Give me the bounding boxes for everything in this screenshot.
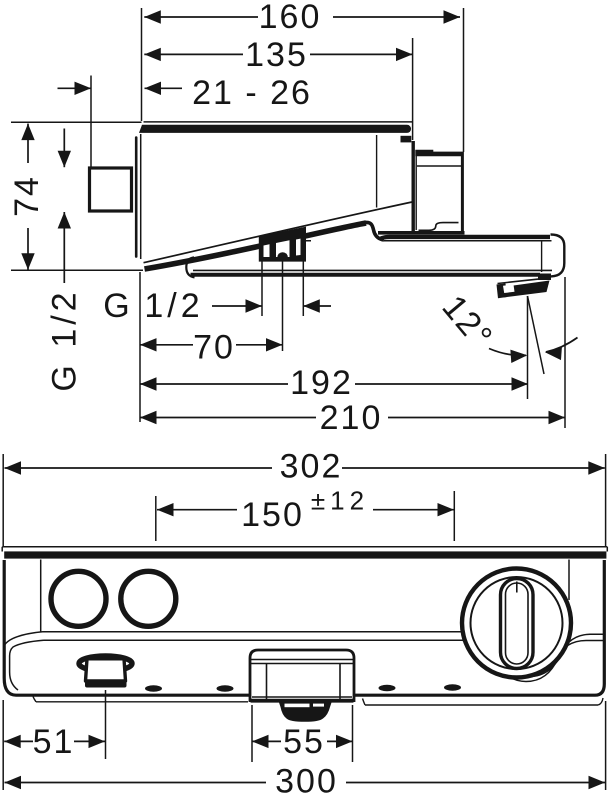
svg-text:±12: ±12 [311,485,369,515]
svg-text:70: 70 [193,329,235,367]
svg-text:G 1/2: G 1/2 [46,288,84,391]
svg-text:55: 55 [283,723,325,761]
svg-text:150: 150 [241,496,304,534]
svg-text:51: 51 [33,723,75,761]
svg-text:G: G [103,287,131,325]
svg-text:74: 74 [8,175,46,217]
svg-text:1/2: 1/2 [144,287,203,325]
svg-text:160: 160 [259,0,322,36]
svg-text:302: 302 [280,448,343,486]
svg-text:21 - 26: 21 - 26 [192,74,312,112]
svg-text:210: 210 [320,399,383,437]
svg-text:135: 135 [245,36,308,74]
svg-text:192: 192 [290,364,353,402]
svg-text:300: 300 [275,762,338,800]
